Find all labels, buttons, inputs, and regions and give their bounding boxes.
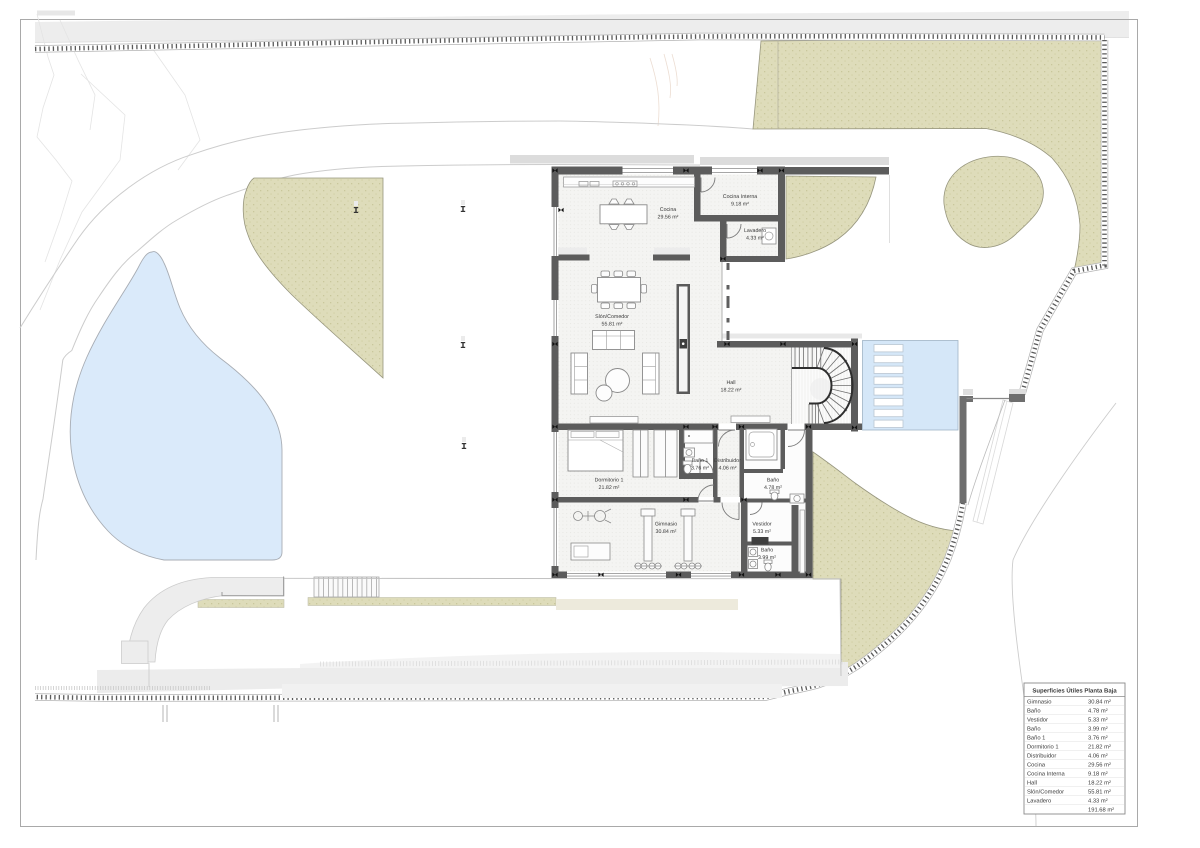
- svg-text:Baño: Baño: [761, 548, 773, 554]
- svg-text:18.22 m²: 18.22 m²: [1088, 780, 1111, 787]
- svg-text:Distribuidor: Distribuidor: [714, 458, 741, 464]
- svg-text:3.76 m²: 3.76 m²: [1088, 735, 1108, 742]
- svg-text:Dormitorio 1: Dormitorio 1: [595, 478, 624, 484]
- svg-text:Vestidor: Vestidor: [752, 522, 771, 528]
- svg-text:Baño: Baño: [767, 478, 779, 484]
- svg-text:18.22 m²: 18.22 m²: [721, 388, 742, 394]
- svg-text:9.18 m²: 9.18 m²: [731, 202, 749, 208]
- svg-text:Baño 1: Baño 1: [692, 458, 709, 464]
- svg-text:Baño 1: Baño 1: [1027, 735, 1045, 742]
- svg-text:30.84 m²: 30.84 m²: [1088, 699, 1111, 706]
- svg-text:55.81 m²: 55.81 m²: [1088, 789, 1111, 796]
- svg-text:Superficies Útiles Planta Baja: Superficies Útiles Planta Baja: [1032, 687, 1117, 695]
- svg-text:4.06 m²: 4.06 m²: [719, 466, 737, 472]
- svg-text:Cocina Interna: Cocina Interna: [1027, 771, 1065, 778]
- svg-text:Baño: Baño: [1027, 708, 1041, 715]
- svg-text:Distribuidor: Distribuidor: [1027, 753, 1056, 760]
- svg-text:Hall: Hall: [1027, 780, 1037, 787]
- svg-text:55.81 m²: 55.81 m²: [602, 322, 623, 328]
- svg-text:5.33 m²: 5.33 m²: [1088, 717, 1108, 724]
- svg-text:3.76 m²: 3.76 m²: [691, 466, 709, 472]
- svg-text:30.84 m²: 30.84 m²: [656, 529, 677, 535]
- svg-text:Lavadero: Lavadero: [1027, 798, 1051, 805]
- svg-text:29.56 m²: 29.56 m²: [658, 215, 679, 221]
- svg-text:Lavadero: Lavadero: [744, 228, 766, 234]
- svg-text:Cocina Interna: Cocina Interna: [723, 194, 758, 200]
- svg-text:3.99 m²: 3.99 m²: [758, 555, 776, 561]
- svg-text:4.06 m²: 4.06 m²: [1088, 753, 1108, 760]
- svg-text:Cocina: Cocina: [660, 207, 677, 213]
- svg-text:29.56 m²: 29.56 m²: [1088, 762, 1111, 769]
- svg-text:Slón/Comedor: Slón/Comedor: [595, 314, 629, 320]
- svg-text:Baño: Baño: [1027, 726, 1041, 733]
- svg-text:Vestidor: Vestidor: [1027, 717, 1048, 724]
- svg-text:Slón/Comedor: Slón/Comedor: [1027, 789, 1064, 796]
- svg-text:3.99 m²: 3.99 m²: [1088, 726, 1108, 733]
- svg-text:4.78 m²: 4.78 m²: [1088, 708, 1108, 715]
- svg-text:Gimnasio: Gimnasio: [1027, 699, 1051, 706]
- svg-text:5.33 m²: 5.33 m²: [753, 529, 771, 535]
- svg-text:Cocina: Cocina: [1027, 762, 1046, 769]
- svg-text:9.18 m²: 9.18 m²: [1088, 771, 1108, 778]
- svg-text:21.82 m²: 21.82 m²: [1088, 744, 1111, 751]
- svg-text:Dormitorio 1: Dormitorio 1: [1027, 744, 1059, 751]
- svg-text:Hall: Hall: [726, 380, 735, 386]
- svg-text:4.33 m²: 4.33 m²: [746, 236, 764, 242]
- svg-text:191.68 m²: 191.68 m²: [1088, 807, 1114, 814]
- svg-text:4.33 m²: 4.33 m²: [1088, 798, 1108, 805]
- svg-text:4.78 m²: 4.78 m²: [764, 485, 782, 491]
- svg-text:Gimnasio: Gimnasio: [655, 522, 677, 528]
- svg-text:21.82 m²: 21.82 m²: [599, 485, 620, 491]
